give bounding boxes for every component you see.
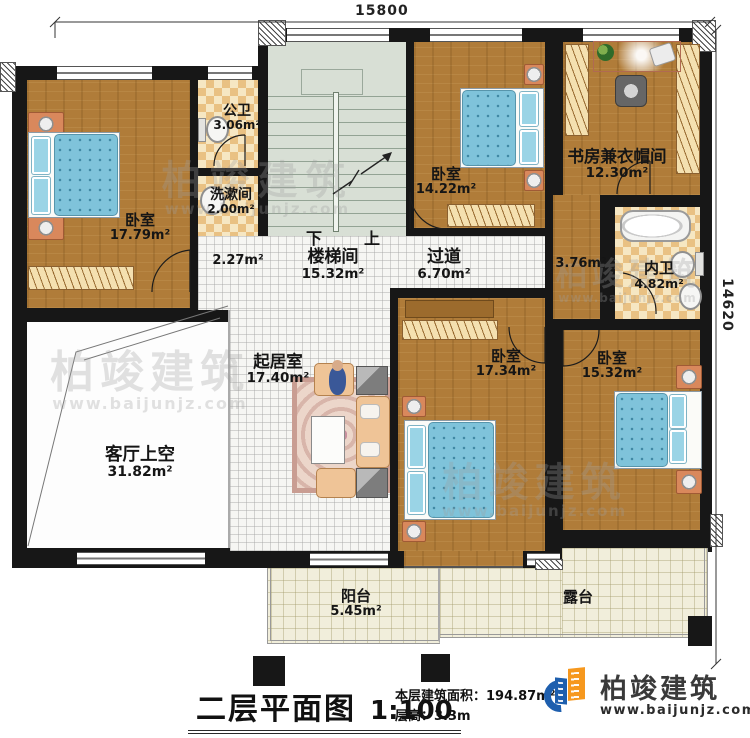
terrace-floor-left	[440, 568, 562, 638]
pillow	[520, 92, 538, 126]
floor-height-line: 层高：3.3m	[395, 707, 555, 727]
armchair	[316, 468, 356, 498]
quilt	[428, 422, 494, 518]
stair-up-label: 上	[364, 225, 380, 249]
room-name: 卧室	[582, 350, 642, 367]
room-area: 17.40m²	[247, 371, 310, 386]
room-area: 12.30m²	[568, 166, 667, 181]
nightstand	[676, 365, 702, 389]
pillar	[253, 656, 285, 686]
bathtub-icon	[620, 210, 691, 242]
room-label-study: 书房兼衣帽间 12.30m²	[568, 148, 667, 181]
closet	[28, 266, 134, 290]
quilt	[462, 90, 516, 166]
window	[208, 66, 252, 80]
closet	[565, 44, 589, 136]
room-name: 起居室	[247, 353, 310, 371]
room-label-balcony: 阳台 5.45m²	[330, 588, 381, 619]
desk-chair	[615, 75, 647, 107]
toilet-tank	[198, 118, 206, 142]
wall-bottom-right	[553, 530, 712, 548]
nightstand	[402, 396, 426, 417]
room-name: 洗漱间	[207, 188, 254, 203]
plant-icon	[597, 44, 614, 61]
nightstand	[524, 170, 544, 191]
pillar	[421, 654, 450, 682]
bedroom-bm-window-sill	[404, 551, 523, 568]
area-value: 3.76m²	[555, 257, 606, 271]
nightstand	[28, 216, 64, 240]
room-living-void-floor	[27, 322, 230, 548]
dimension-right: 14620	[719, 278, 735, 332]
room-label-bedroom-br: 卧室 15.32m²	[582, 350, 642, 381]
room-name: 内卫	[634, 260, 683, 277]
room-area: 17.34m²	[476, 365, 536, 379]
wall-stub	[390, 551, 404, 568]
room-name: 卧室	[110, 212, 170, 229]
pillow	[408, 472, 425, 514]
sofa-pillow	[360, 404, 380, 419]
window	[287, 28, 389, 42]
coffee-table	[311, 416, 345, 464]
logo: 柏竣建筑 www.baijunjz.com	[600, 676, 750, 718]
hatch-mark	[0, 62, 16, 92]
nightstand	[524, 64, 544, 85]
room-label-bedroom-tl: 卧室 17.79m²	[110, 212, 170, 243]
room-name: 阳台	[330, 588, 381, 605]
room-name: 书房兼衣帽间	[568, 148, 667, 166]
room-area: 3.06m²	[213, 119, 260, 132]
dresser	[405, 300, 494, 318]
room-name: 楼梯间	[302, 248, 365, 267]
stair-down-label: 下	[306, 225, 322, 249]
side-table	[356, 468, 388, 498]
room-area: 5.45m²	[330, 605, 381, 619]
hatch-mark	[258, 20, 286, 46]
room-name: 公卫	[213, 104, 260, 119]
floor-plan-canvas: 柏竣建筑 www.baijunjz.com 柏竣建筑 www.baijunjz.…	[0, 0, 750, 738]
window	[583, 28, 679, 42]
room-label-public-bath: 公卫 3.06m²	[213, 104, 260, 133]
room-label-terrace: 露台	[563, 589, 593, 606]
room-label-living: 起居室 17.40m²	[247, 353, 310, 386]
closet	[402, 320, 498, 340]
room-label-inner-bath: 内卫 4.82m²	[634, 260, 683, 290]
window	[57, 66, 152, 80]
room-name: 客厅上空	[105, 446, 175, 465]
room-area: 14.22m²	[416, 183, 476, 197]
room-area: 15.32m²	[582, 367, 642, 381]
hall-area-left: 2.27m²	[212, 254, 263, 268]
pillow	[408, 426, 425, 468]
floor-area-line: 本层建筑面积：194.87m²	[395, 687, 555, 707]
side-table	[356, 366, 388, 395]
sofa-pillow	[360, 442, 380, 457]
room-area: 17.79m²	[110, 229, 170, 243]
pillow	[32, 137, 50, 174]
nightstand	[402, 521, 426, 542]
top-left-notch	[0, 0, 258, 66]
room-label-stairwell: 楼梯间 15.32m²	[302, 248, 365, 282]
stair-rail	[333, 92, 339, 232]
pillar	[688, 616, 712, 646]
pillow	[670, 430, 686, 463]
room-label-bedroom-tm: 卧室 14.22m²	[416, 166, 476, 197]
logo-url: www.baijunjz.com	[600, 703, 750, 718]
room-area: 6.70m²	[417, 267, 470, 282]
room-area: 4.82m²	[634, 277, 683, 291]
dimension-top: 15800	[355, 3, 409, 19]
balcony-slider	[310, 553, 388, 566]
pillow	[670, 395, 686, 428]
logo-icon	[544, 666, 594, 726]
room-name: 过道	[417, 248, 470, 267]
room-area: 15.32m²	[302, 267, 365, 282]
logo-brand: 柏竣建筑	[600, 676, 750, 703]
area-value: 2.27m²	[212, 254, 263, 268]
person-head	[332, 360, 343, 371]
hatch-mark	[535, 559, 563, 570]
toilet-tank	[695, 252, 704, 276]
pillow	[520, 130, 538, 164]
room-label-corridor: 过道 6.70m²	[417, 248, 470, 282]
plan-meta: 本层建筑面积：194.87m² 层高：3.3m	[395, 687, 555, 727]
void-living-divider	[228, 310, 230, 548]
pillow	[32, 177, 50, 214]
room-name: 卧室	[416, 166, 476, 183]
room-name: 露台	[563, 589, 593, 606]
logo-building-orange	[568, 667, 585, 701]
window	[430, 28, 522, 42]
room-area: 31.82m²	[105, 465, 175, 480]
nightstand	[676, 470, 702, 494]
hatch-mark	[710, 514, 723, 547]
room-area: 2.00m²	[207, 203, 254, 216]
room-label-living-void: 客厅上空 31.82m²	[105, 446, 175, 481]
quilt	[616, 393, 668, 467]
logo-building-blue	[555, 677, 567, 704]
window	[77, 552, 205, 565]
room-label-bedroom-bm: 卧室 17.34m²	[476, 348, 536, 379]
page-title: 二层平面图	[196, 692, 356, 727]
room-name: 卧室	[476, 348, 536, 365]
hall-area-right: 3.76m²	[555, 257, 606, 271]
stair-landing	[301, 69, 363, 95]
quilt	[54, 134, 118, 216]
closet	[447, 204, 535, 227]
room-label-washroom: 洗漱间 2.00m²	[207, 188, 254, 217]
